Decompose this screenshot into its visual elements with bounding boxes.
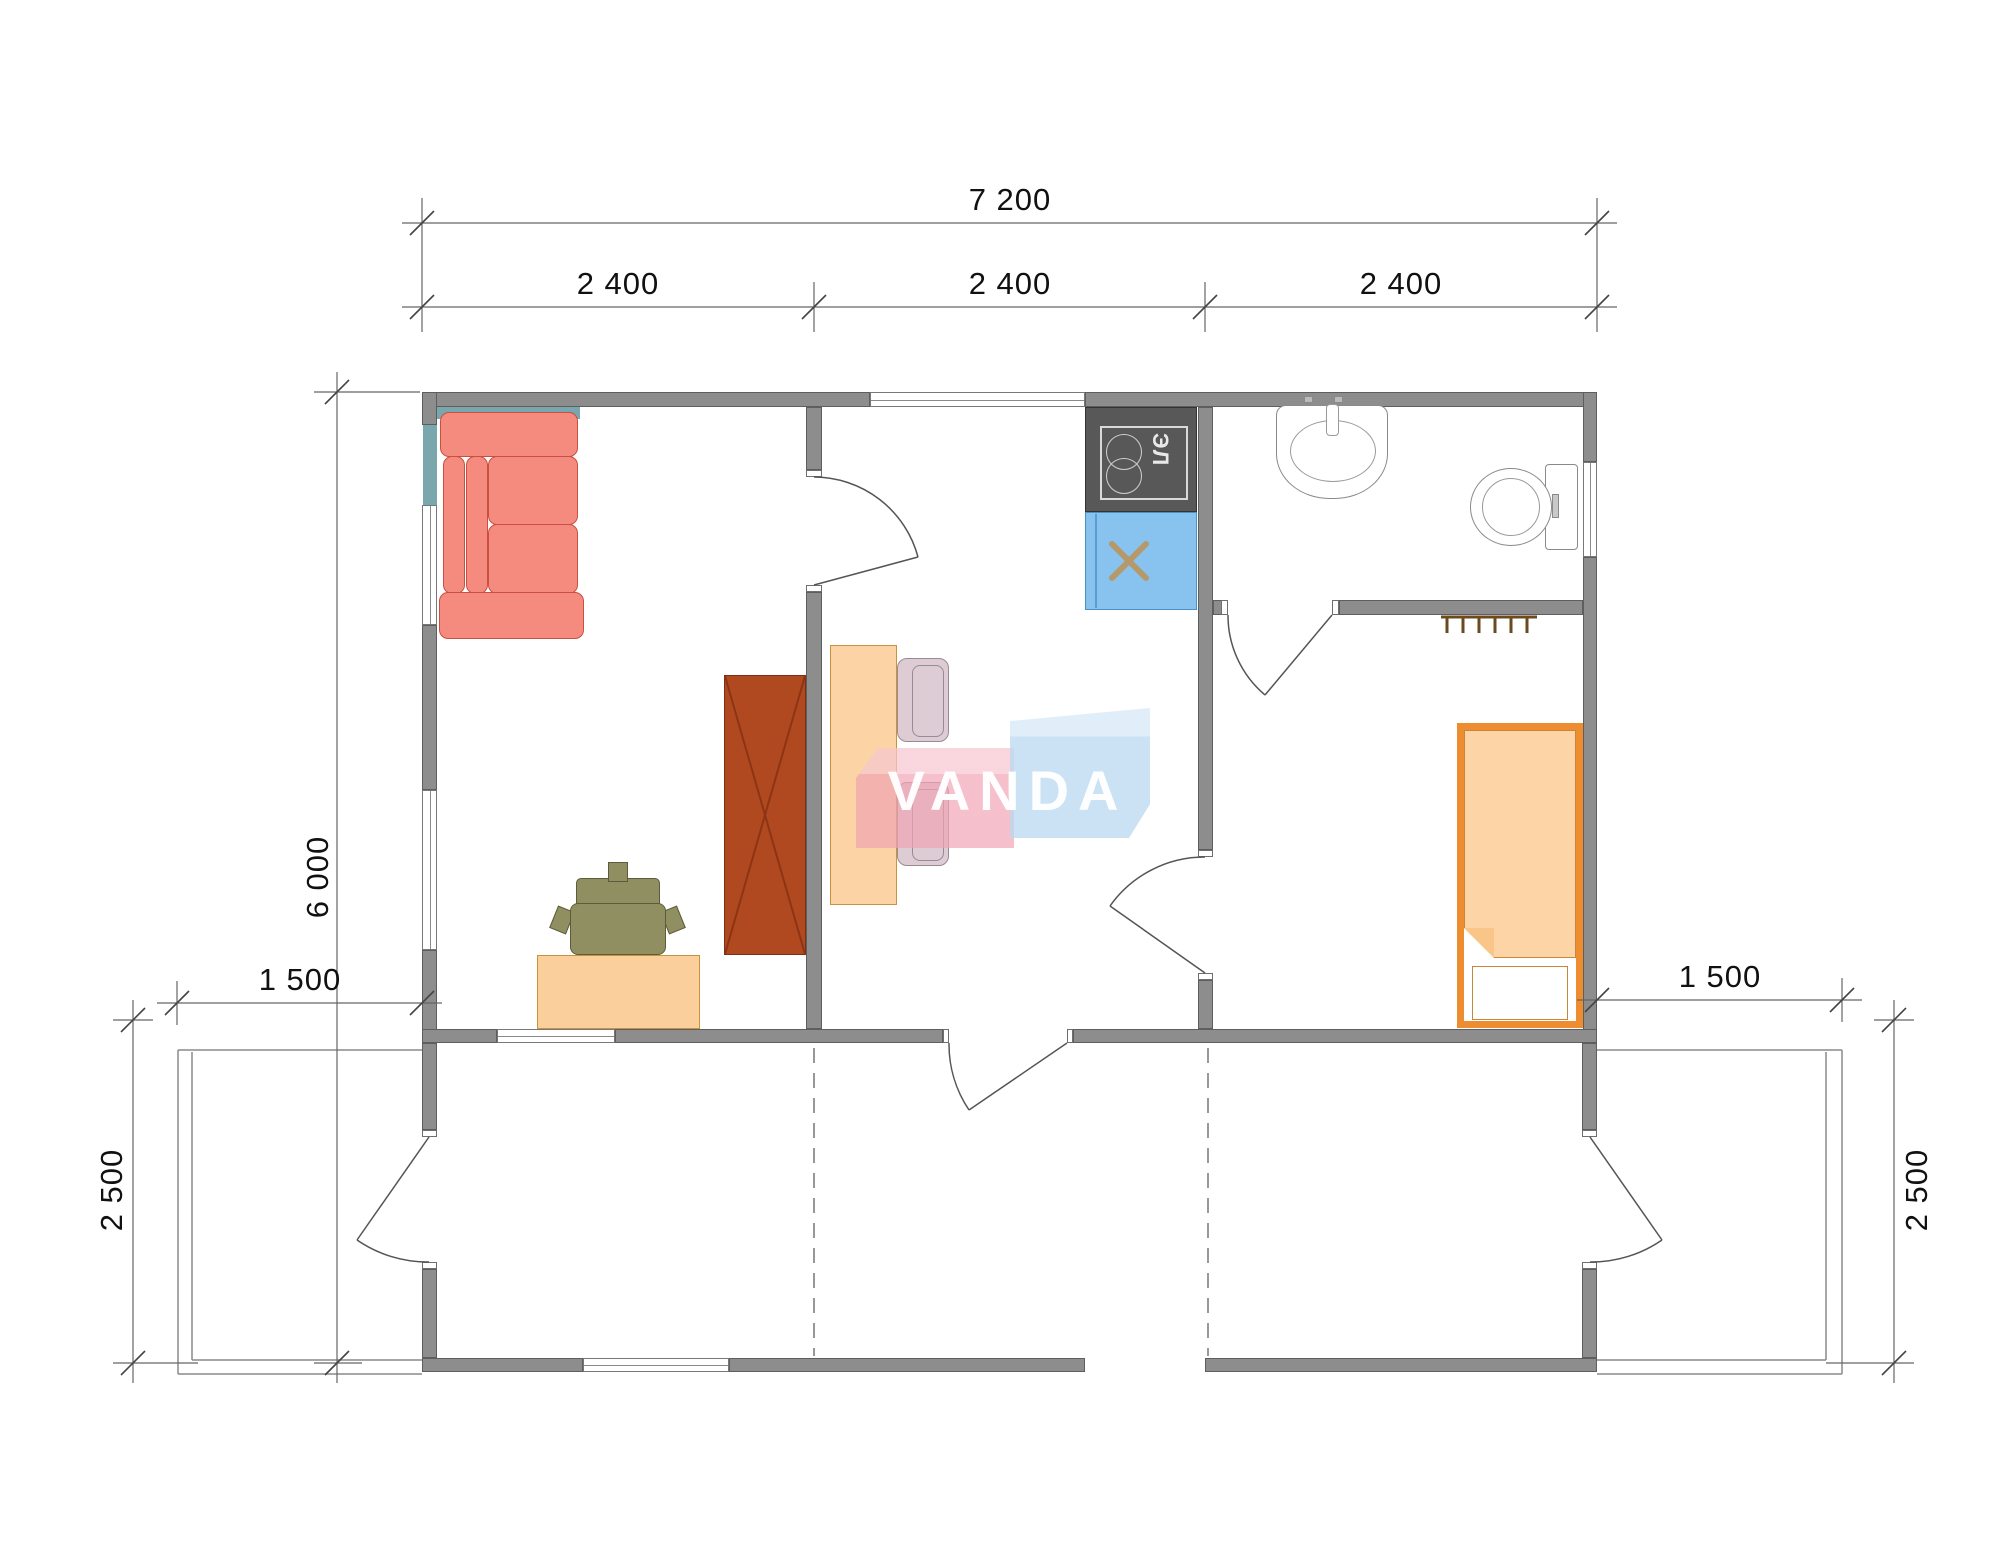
dim-porch-left-width: 1 500: [200, 962, 400, 998]
watermark-text: VANDA: [860, 758, 1155, 823]
dim-overall-width: 7 200: [910, 182, 1110, 218]
dim-porch-left-depth: 2 500: [94, 1110, 130, 1270]
dim-porch-right-width: 1 500: [1620, 959, 1820, 995]
module-dashed-lines: [814, 1048, 1208, 1356]
dim-overall-depth: 6 000: [300, 797, 336, 957]
dim-module-1: 2 400: [518, 266, 718, 302]
vanda-watermark: VANDA: [850, 700, 1160, 860]
door-swing-icon: [357, 477, 1662, 1262]
floor-plan-canvas: ЭЛ: [0, 0, 2000, 1563]
sink-cross-icon: [1112, 544, 1146, 578]
coat-rack-icon: [1441, 617, 1537, 633]
dim-module-3: 2 400: [1301, 266, 1501, 302]
deck-railings: [178, 1050, 1842, 1374]
dim-module-2: 2 400: [910, 266, 1110, 302]
dim-porch-right-depth: 2 500: [1899, 1110, 1935, 1270]
wardrobe-cross: [725, 676, 805, 954]
